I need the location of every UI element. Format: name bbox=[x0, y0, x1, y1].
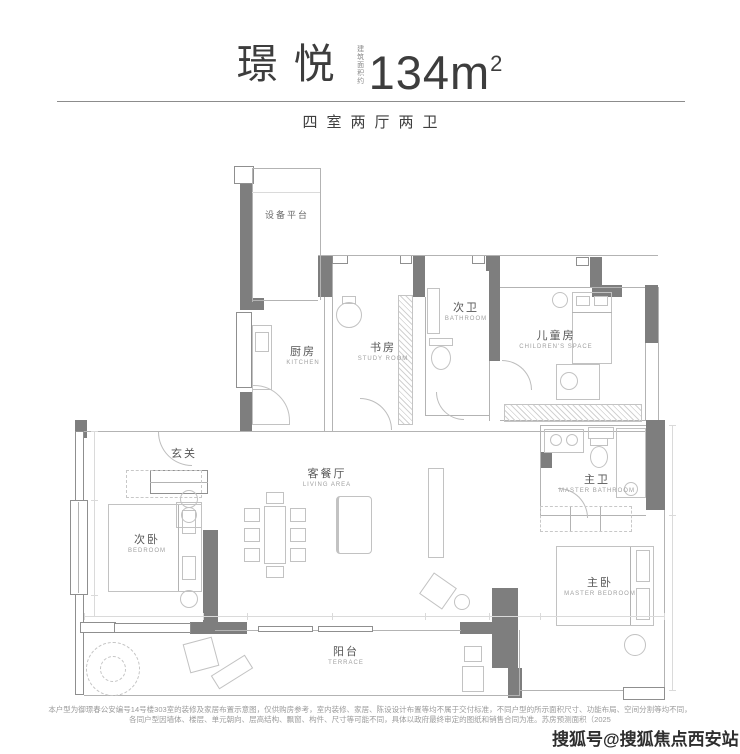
wardrobe bbox=[504, 404, 642, 422]
room-name-en: MASTER BEDROOM bbox=[564, 591, 636, 598]
wall-line bbox=[489, 361, 490, 421]
dimension-line bbox=[252, 192, 320, 193]
room-name-en: MASTER BATHROOM bbox=[559, 488, 635, 495]
side-table bbox=[454, 594, 470, 610]
dimension-tick bbox=[669, 425, 676, 426]
wall-line bbox=[540, 425, 646, 426]
room-name: 厨房 bbox=[286, 346, 319, 359]
room-name-en: CHILDREN'S SPACE bbox=[519, 344, 592, 351]
ac-unit bbox=[462, 666, 484, 692]
dimension-tick bbox=[91, 595, 98, 596]
kitchen-corner-counter bbox=[252, 385, 290, 425]
toilet-bowl bbox=[590, 446, 608, 468]
pillow bbox=[594, 296, 608, 306]
sliding-door-panel bbox=[318, 626, 373, 632]
terrace-table bbox=[183, 637, 220, 674]
room-name-en: LIVING AREA bbox=[303, 482, 351, 489]
kitchen-sink bbox=[255, 332, 269, 352]
toilet-bowl bbox=[431, 346, 451, 370]
dimension-line bbox=[94, 431, 95, 617]
door-arc bbox=[502, 360, 532, 390]
dimension-tick bbox=[540, 613, 541, 620]
pillow bbox=[182, 556, 196, 580]
dimension-line bbox=[672, 425, 673, 690]
wall-line bbox=[425, 297, 426, 415]
wall-segment bbox=[240, 392, 252, 432]
dimension-tick bbox=[91, 431, 98, 432]
wall-flange bbox=[472, 255, 485, 264]
dimension-tick bbox=[669, 515, 676, 516]
room-label-study: 书房 STUDY ROOM bbox=[358, 342, 409, 363]
wall-line bbox=[519, 630, 520, 696]
closet-line bbox=[570, 507, 571, 531]
wall-line bbox=[318, 255, 658, 256]
dining-chair bbox=[244, 508, 260, 522]
watermark: 搜狐号@搜狐焦点西安站 bbox=[552, 725, 739, 750]
dimension-tick bbox=[669, 690, 676, 691]
tv-cabinet bbox=[428, 468, 444, 558]
wall-column bbox=[234, 166, 254, 184]
window bbox=[80, 622, 116, 633]
room-label-master-bedroom: 主卧 MASTER BEDROOM bbox=[564, 577, 636, 598]
dining-chair bbox=[244, 528, 260, 542]
room-label-terrace: 阳台 TERRACE bbox=[328, 646, 364, 667]
disclaimer-line-1: 本户型为御璟春公安编号14号楼303室的装修及家居布置示意图，仅供购房参考，室内… bbox=[0, 705, 740, 715]
wall-segment bbox=[413, 255, 425, 297]
plant-inner bbox=[100, 656, 126, 682]
room-name: 阳台 bbox=[328, 646, 364, 659]
wall-flange bbox=[400, 255, 412, 264]
vanity bbox=[427, 288, 440, 334]
room-name-en: BATHROOM bbox=[445, 316, 487, 323]
wall-segment bbox=[646, 420, 665, 510]
nightstand bbox=[552, 292, 568, 308]
dining-chair bbox=[290, 508, 306, 522]
wall-segment bbox=[489, 269, 500, 361]
toilet-tank bbox=[429, 338, 453, 346]
room-label-hallway: 玄关 bbox=[171, 448, 197, 461]
wall-line bbox=[658, 287, 659, 420]
desk-chair bbox=[336, 302, 362, 328]
room-name: 主卧 bbox=[564, 577, 636, 590]
sliding-door-panel bbox=[258, 626, 313, 632]
ac-unit bbox=[464, 646, 482, 662]
dimension-tick bbox=[489, 613, 490, 620]
wall-line bbox=[252, 168, 320, 169]
blanket-line bbox=[178, 505, 179, 591]
dining-chair bbox=[266, 566, 284, 578]
closet bbox=[540, 506, 632, 532]
room-name: 儿童房 bbox=[519, 330, 592, 343]
dining-table bbox=[264, 506, 286, 564]
room-name: 客餐厅 bbox=[303, 468, 351, 481]
dining-chair bbox=[244, 548, 260, 562]
pillow bbox=[636, 550, 650, 582]
room-name: 次卫 bbox=[445, 302, 487, 315]
wall-line bbox=[500, 287, 645, 288]
dimension-tick bbox=[91, 500, 98, 501]
window bbox=[236, 312, 252, 388]
room-name-en: BEDROOM bbox=[128, 548, 166, 555]
window-mullion bbox=[78, 502, 79, 593]
room-name-en: KITCHEN bbox=[286, 360, 319, 367]
wall-line bbox=[324, 297, 325, 432]
disclaimer: 本户型为御璟春公安编号14号楼303室的装修及家居布置示意图，仅供购房参考，室内… bbox=[0, 705, 740, 725]
wall-segment bbox=[240, 184, 252, 310]
wall-line bbox=[320, 168, 321, 300]
sink bbox=[550, 434, 562, 446]
wall-line bbox=[645, 343, 646, 420]
exterior-wall bbox=[114, 623, 191, 633]
room-label-kitchen: 厨房 KITCHEN bbox=[286, 346, 319, 367]
room-label-equipment: 设备平台 bbox=[265, 210, 309, 220]
wall-segment bbox=[203, 530, 218, 625]
armchair bbox=[419, 572, 457, 609]
room-name-en: STUDY ROOM bbox=[358, 356, 409, 363]
room-name: 设备平台 bbox=[265, 210, 309, 220]
nightstand bbox=[180, 590, 198, 608]
nightstand bbox=[180, 490, 198, 508]
wall-step bbox=[623, 687, 665, 700]
disclaimer-line-2: 各同户型因墙体、楼层、单元朝向、层高结构、飘窗、构件、尺寸等可能不同，具体以政府… bbox=[0, 715, 740, 725]
dining-chair bbox=[290, 528, 306, 542]
sink bbox=[566, 434, 578, 446]
room-label-children: 儿童房 CHILDREN'S SPACE bbox=[519, 330, 592, 351]
room-name: 主卫 bbox=[559, 474, 635, 487]
pillow bbox=[576, 296, 590, 306]
desk bbox=[342, 296, 356, 304]
dimension-tick bbox=[664, 613, 665, 620]
room-label-master-bath: 主卫 MASTER BATHROOM bbox=[559, 474, 635, 495]
wall-line bbox=[252, 300, 318, 301]
dimension-line bbox=[84, 616, 664, 617]
room-name-en: TERRACE bbox=[328, 660, 364, 667]
wall-line bbox=[664, 510, 665, 690]
room-label-bedroom2: 次卧 BEDROOM bbox=[128, 534, 166, 555]
stool bbox=[624, 634, 646, 656]
wall-line bbox=[332, 264, 333, 432]
wall-line bbox=[540, 425, 541, 515]
dimension-tick bbox=[84, 613, 85, 620]
dimension-tick bbox=[425, 613, 426, 620]
wall-line bbox=[252, 168, 253, 302]
wall-flange bbox=[332, 255, 348, 264]
wall-segment bbox=[645, 285, 658, 343]
pillow bbox=[182, 510, 196, 534]
room-name: 次卧 bbox=[128, 534, 166, 547]
window bbox=[70, 500, 88, 595]
door-arc bbox=[360, 398, 392, 430]
floor-plan: 设备平台 厨房 KITCHEN 书房 STUDY ROOM 次卫 BATHROO… bbox=[0, 0, 740, 754]
wall-segment bbox=[540, 452, 552, 468]
dining-chair bbox=[266, 492, 284, 504]
wall-segment bbox=[190, 622, 247, 634]
wall-segment bbox=[492, 588, 518, 668]
room-name: 书房 bbox=[358, 342, 409, 355]
blanket-line bbox=[572, 312, 612, 313]
dimension-tick bbox=[332, 613, 333, 620]
dimension-tick bbox=[247, 613, 248, 620]
toilet-tank bbox=[590, 438, 608, 446]
wall-flange bbox=[576, 257, 589, 266]
closet-line bbox=[600, 507, 601, 531]
room-label-living: 客餐厅 LIVING AREA bbox=[303, 468, 351, 489]
sofa bbox=[336, 496, 372, 554]
room-name: 玄关 bbox=[171, 448, 197, 461]
wall-segment bbox=[590, 257, 602, 287]
wall-line bbox=[84, 695, 520, 696]
desk-chair bbox=[560, 372, 578, 390]
room-label-bath2: 次卫 BATHROOM bbox=[445, 302, 487, 323]
dimension-tick bbox=[203, 613, 204, 620]
floorplan-page: 璟悦 建筑面积约 134m2 四室两厅两卫 bbox=[0, 0, 740, 754]
dining-chair bbox=[290, 548, 306, 562]
